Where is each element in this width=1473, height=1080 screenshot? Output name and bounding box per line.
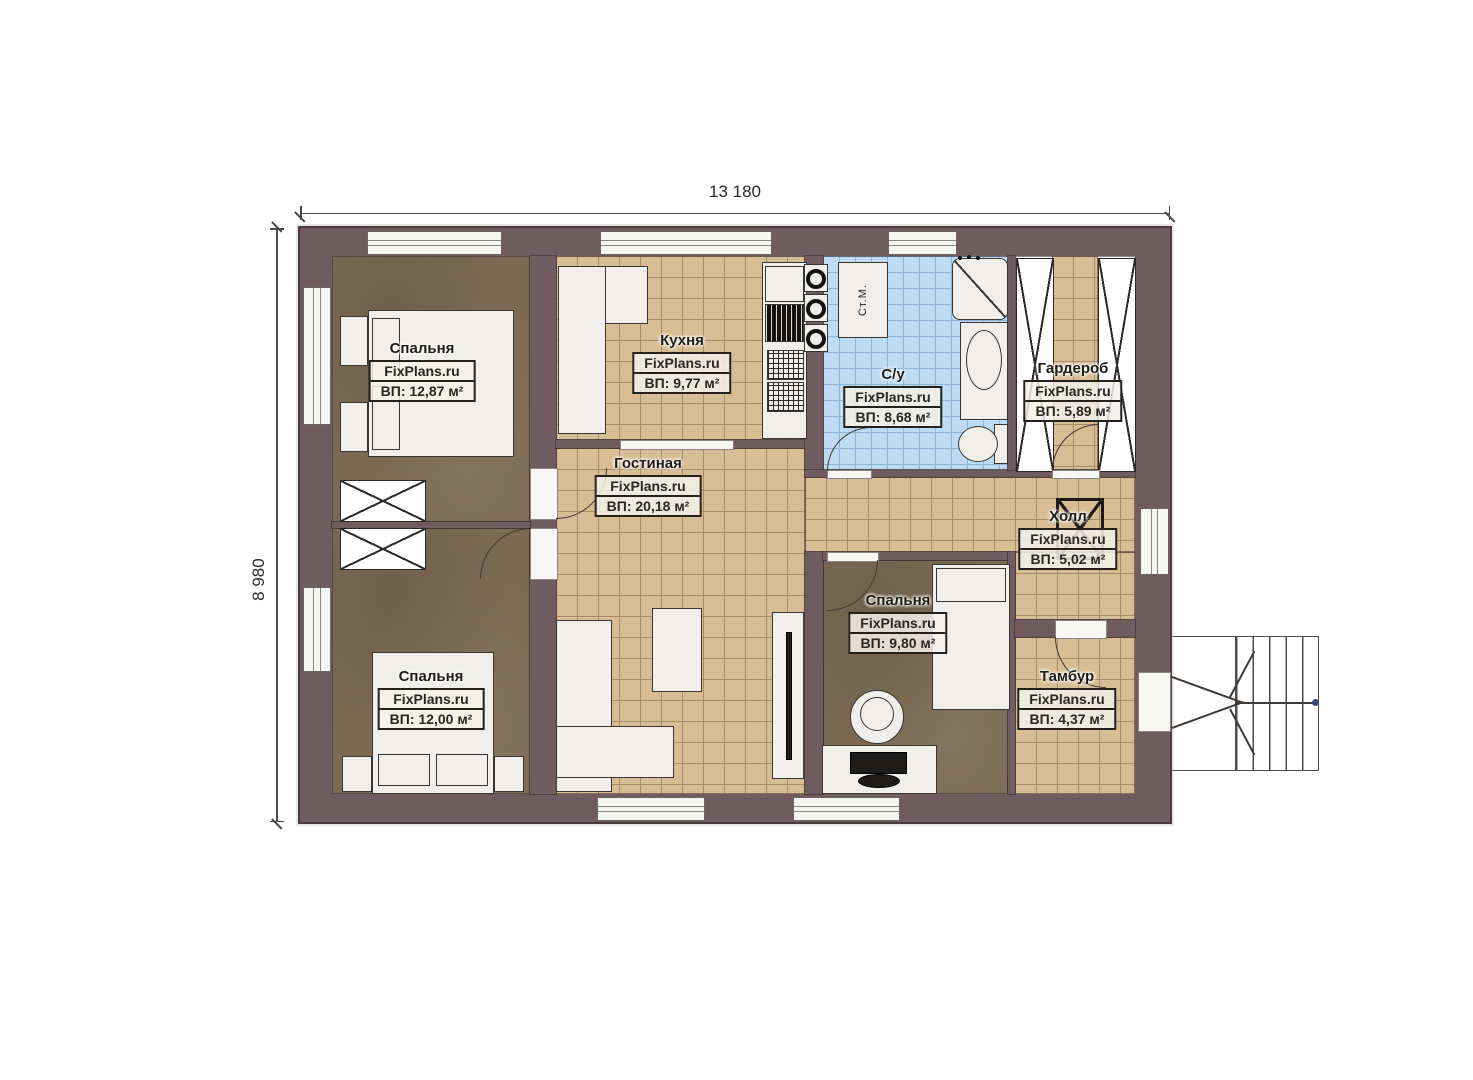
room-name: Спальня: [369, 340, 476, 357]
watermark: FixPlans.ru: [850, 614, 945, 634]
nightstand: [340, 316, 368, 366]
room-label-wardrobe: Гардероб FixPlans.ru ВП: 5,89 м²: [1023, 360, 1122, 422]
stairs-direction-line: [1235, 702, 1313, 704]
dimension-height-label: 8 980: [249, 552, 269, 607]
shower-tray: [952, 258, 1008, 320]
stove-burner: [804, 324, 828, 352]
washing-machine-label: Ст.М.: [857, 284, 869, 316]
door-bathroom: [827, 470, 872, 479]
window-kitchen: [600, 231, 772, 255]
entrance-stairs: [1235, 637, 1318, 770]
room-area: ВП: 4,37 м²: [1019, 710, 1114, 728]
window-hall: [1140, 508, 1169, 575]
washing-machine: Ст.М.: [838, 262, 888, 338]
room-area: ВП: 12,00 м²: [380, 710, 483, 728]
nightstand: [494, 756, 524, 792]
room-name: Тамбур: [1017, 668, 1116, 685]
door-bedroom-bottom-left: [530, 528, 558, 580]
watermark: FixPlans.ru: [634, 354, 729, 374]
keyboard: [858, 774, 900, 788]
computer-monitor: [850, 752, 907, 774]
kitchen-drainer: [765, 304, 804, 342]
room-name: С/у: [843, 366, 942, 383]
bathroom-sink: [966, 330, 1002, 390]
watermark: FixPlans.ru: [380, 690, 483, 710]
wall-bedrooms-living: [530, 256, 556, 794]
shower-head-icon: [956, 254, 982, 262]
room-label-tambour: Тамбур FixPlans.ru ВП: 4,37 м²: [1017, 668, 1116, 730]
toilet-bowl: [958, 426, 998, 462]
entrance-porch: [1170, 636, 1319, 771]
room-name: Гостиная: [595, 455, 702, 472]
watermark: FixPlans.ru: [597, 477, 700, 497]
window-bedroom-top-left: [367, 231, 502, 255]
room-label-living-room: Гостиная FixPlans.ru ВП: 20,18 м²: [595, 455, 702, 517]
room-label-hall: Холл FixPlans.ru ВП: 5,02 м²: [1018, 508, 1117, 570]
pillow: [378, 754, 430, 786]
stove-grate: [767, 382, 804, 412]
dimension-line: [300, 213, 1170, 215]
stove-burner: [804, 264, 828, 292]
watermark: FixPlans.ru: [845, 388, 940, 408]
door-bedroom-top-left: [530, 468, 558, 520]
room-label-bedroom-bottom-center: Спальня FixPlans.ru ВП: 9,80 м²: [848, 592, 947, 654]
dimension-tick: [1165, 211, 1176, 222]
stairs-direction-dot: [1312, 699, 1319, 706]
watermark: FixPlans.ru: [1025, 382, 1120, 402]
room-label-bedroom-bottom-left: Спальня FixPlans.ru ВП: 12,00 м²: [378, 668, 485, 730]
window-bedroom-left-2: [303, 587, 331, 672]
window-bedroom-bottom-center: [793, 797, 900, 821]
nightstand: [342, 756, 372, 792]
room-label-bathroom: С/у FixPlans.ru ВП: 8,68 м²: [843, 366, 942, 428]
wall-bathroom-wardrobe: [1008, 256, 1015, 470]
window-bathroom: [888, 231, 957, 255]
watermark: FixPlans.ru: [1019, 690, 1114, 710]
room-area: ВП: 9,80 м²: [850, 634, 945, 652]
passage-kitchen-living: [620, 440, 734, 450]
room-area: ВП: 12,87 м²: [371, 382, 474, 400]
coffee-table: [652, 608, 702, 692]
closet-box: [340, 480, 426, 522]
kitchen-sink: [765, 266, 804, 302]
window-living-room: [597, 797, 705, 821]
sofa: [556, 726, 674, 778]
room-name: Спальня: [378, 668, 485, 685]
dimension-left: 8 980: [258, 228, 286, 822]
room-area: ВП: 9,77 м²: [634, 374, 729, 392]
window-bedroom-left-1: [303, 287, 331, 425]
dimension-line: [276, 228, 278, 822]
watermark: FixPlans.ru: [371, 362, 474, 382]
stove-grate: [767, 350, 804, 380]
room-area: ВП: 8,68 м²: [845, 408, 940, 426]
room-name: Спальня: [848, 592, 947, 609]
dimension-width-label: 13 180: [703, 182, 767, 202]
nightstand: [340, 402, 368, 452]
room-area: ВП: 5,89 м²: [1025, 402, 1120, 420]
room-label-bedroom-top-left: Спальня FixPlans.ru ВП: 12,87 м²: [369, 340, 476, 402]
room-name: Гардероб: [1023, 360, 1122, 377]
room-area: ВП: 20,18 м²: [597, 497, 700, 515]
room-label-kitchen: Кухня FixPlans.ru ВП: 9,77 м²: [632, 332, 731, 394]
kitchen-corner-sofa: [558, 266, 606, 434]
dimension-top: 13 180: [300, 188, 1170, 216]
room-area: ВП: 5,02 м²: [1020, 550, 1115, 568]
watermark: FixPlans.ru: [1020, 530, 1115, 550]
tv-screen: [786, 632, 792, 760]
entry-door: [1138, 672, 1171, 732]
room-name: Кухня: [632, 332, 731, 349]
room-name: Холл: [1018, 508, 1117, 525]
stove-burner: [804, 294, 828, 322]
pillow: [436, 754, 488, 786]
door-wardrobe: [1052, 470, 1100, 479]
closet-box: [340, 528, 426, 570]
stool: [850, 690, 904, 744]
wall-living-bedroom: [805, 552, 823, 794]
